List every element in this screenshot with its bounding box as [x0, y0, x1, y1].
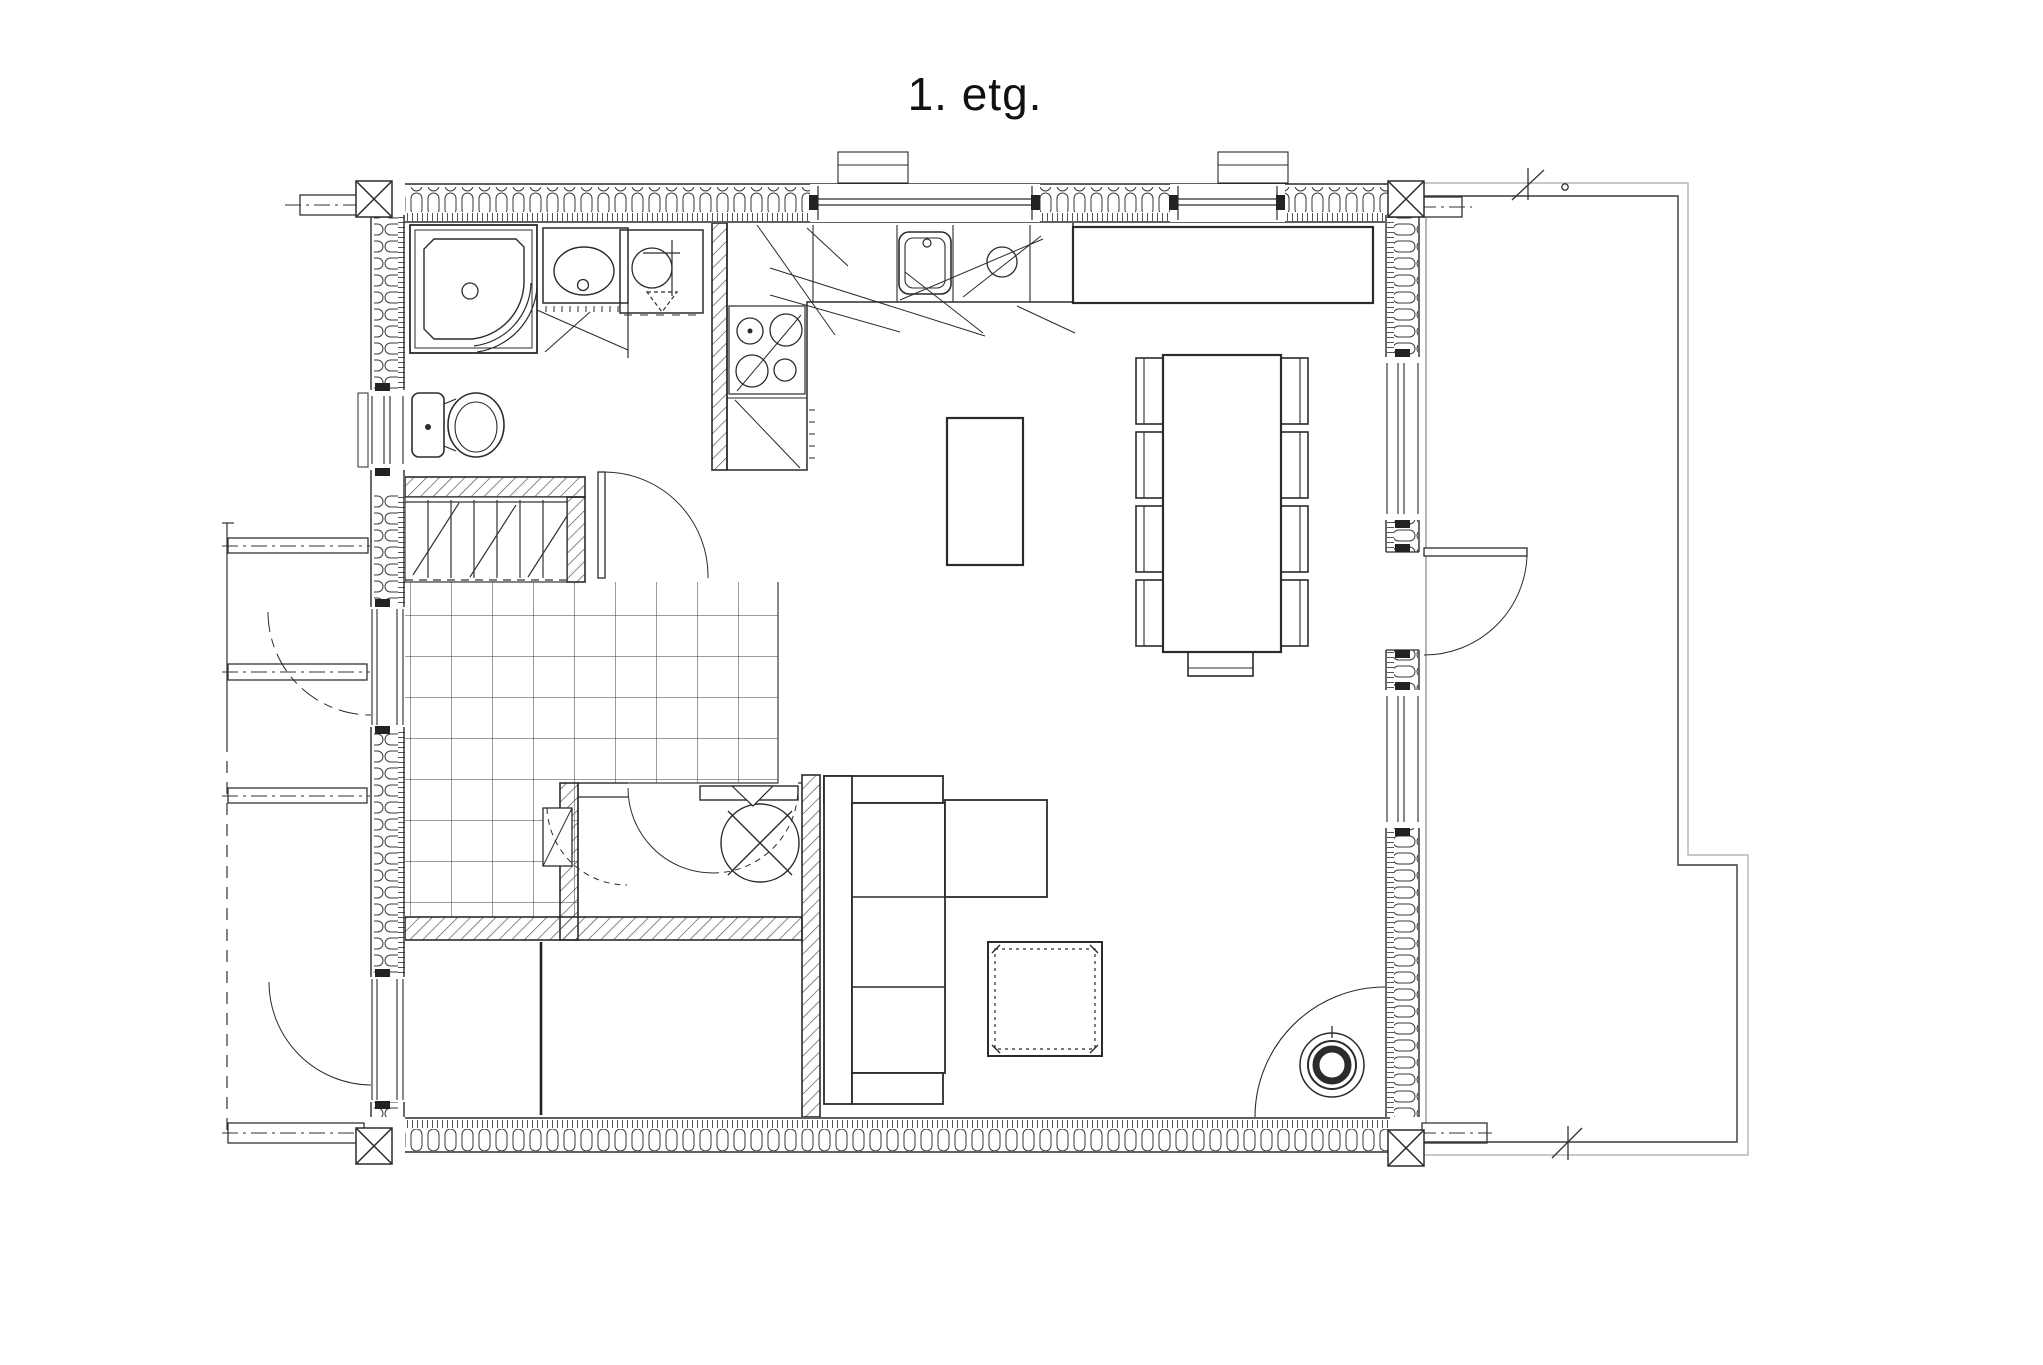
dining-table-set	[1136, 355, 1308, 676]
kitchen-island-table	[947, 418, 1023, 565]
floor-plan-page: 1. etg.	[0, 0, 2043, 1365]
dining-table	[1163, 355, 1281, 652]
toilet	[412, 393, 504, 457]
page-title: 1. etg.	[908, 68, 1043, 120]
floor-plan-drawing: 1. etg.	[0, 0, 2043, 1365]
staircase	[405, 497, 567, 582]
sideboard-bench	[1073, 227, 1373, 303]
